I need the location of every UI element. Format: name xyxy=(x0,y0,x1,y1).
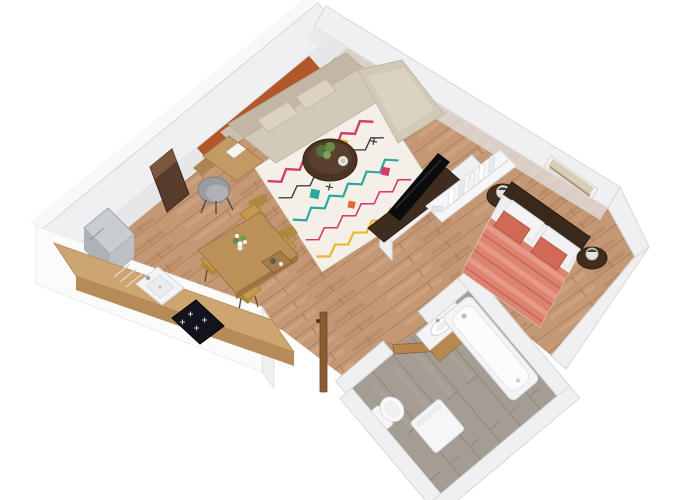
table-plant xyxy=(325,142,335,152)
table-bowl xyxy=(341,159,346,164)
closet-folded-items xyxy=(432,206,443,212)
coffee-table xyxy=(303,139,357,181)
entry-door-handle xyxy=(316,319,320,323)
desk-chair-seat xyxy=(206,185,228,202)
floorplan-screenshot xyxy=(0,0,700,500)
floorplan-3d-render xyxy=(0,0,700,500)
sink-drain xyxy=(159,286,162,289)
table-plant xyxy=(323,151,331,159)
sink-faucet xyxy=(146,276,150,280)
